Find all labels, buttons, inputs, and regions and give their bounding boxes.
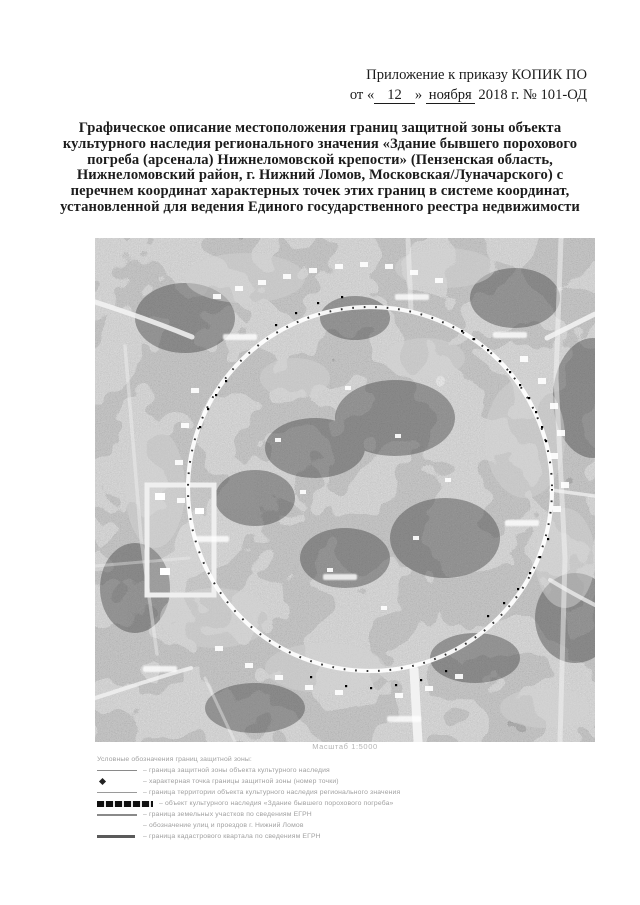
document-title: Графическое описание местоположения гран… — [30, 121, 610, 216]
title-line: установленной для ведения Единого госуда… — [30, 200, 610, 216]
legend-item: – граница кадастрового квартала по сведе… — [97, 831, 577, 842]
document-page: Приложение к приказу КОПИК ПО от «12» но… — [0, 0, 640, 905]
characteristic-point-symbol — [97, 779, 143, 784]
aerial-map-image — [95, 238, 595, 742]
map-legend: Условные обозначения границ защитной зон… — [97, 754, 577, 842]
legend-item: – граница защитной зоны объекта культурн… — [97, 765, 577, 776]
order-month: ноября — [426, 87, 475, 104]
legend-item: – обозначение улиц и проездов г. Нижний … — [97, 820, 577, 831]
legend-heading: Условные обозначения границ защитной зон… — [97, 754, 577, 765]
heritage-object-symbol — [97, 801, 159, 807]
title-line: погреба (арсенала) Нижнеломовской крепос… — [30, 153, 610, 169]
title-line: культурного наследия регионального значе… — [30, 137, 610, 153]
zone-boundary-line-symbol — [97, 770, 143, 771]
title-line: Нижнеломовский район, г. Нижний Ломов, М… — [30, 168, 610, 184]
title-line: Графическое описание местоположения гран… — [30, 121, 610, 137]
annex-header: Приложение к приказу КОПИК ПО от «12» но… — [350, 66, 587, 105]
map-scale-label: Масштаб 1:5000 — [95, 742, 595, 751]
cadastral-quarter-line-symbol — [97, 835, 143, 838]
territory-boundary-line-symbol — [97, 792, 143, 793]
legend-item: – объект культурного наследия «Здание бы… — [97, 798, 577, 809]
annex-header-line2: от «12» ноября 2018 г. № 101-ОД — [350, 86, 587, 106]
parcel-boundary-line-symbol — [97, 814, 143, 816]
map-graphic — [95, 238, 595, 742]
legend-item: – граница земельных участков по сведения… — [97, 809, 577, 820]
legend-item: – граница территории объекта культурного… — [97, 787, 577, 798]
annex-header-line1: Приложение к приказу КОПИК ПО — [350, 66, 587, 86]
title-line: перечнем координат характерных точек эти… — [30, 184, 610, 200]
legend-item: – характерная точка границы защитной зон… — [97, 776, 577, 787]
order-day: 12 — [374, 87, 415, 104]
